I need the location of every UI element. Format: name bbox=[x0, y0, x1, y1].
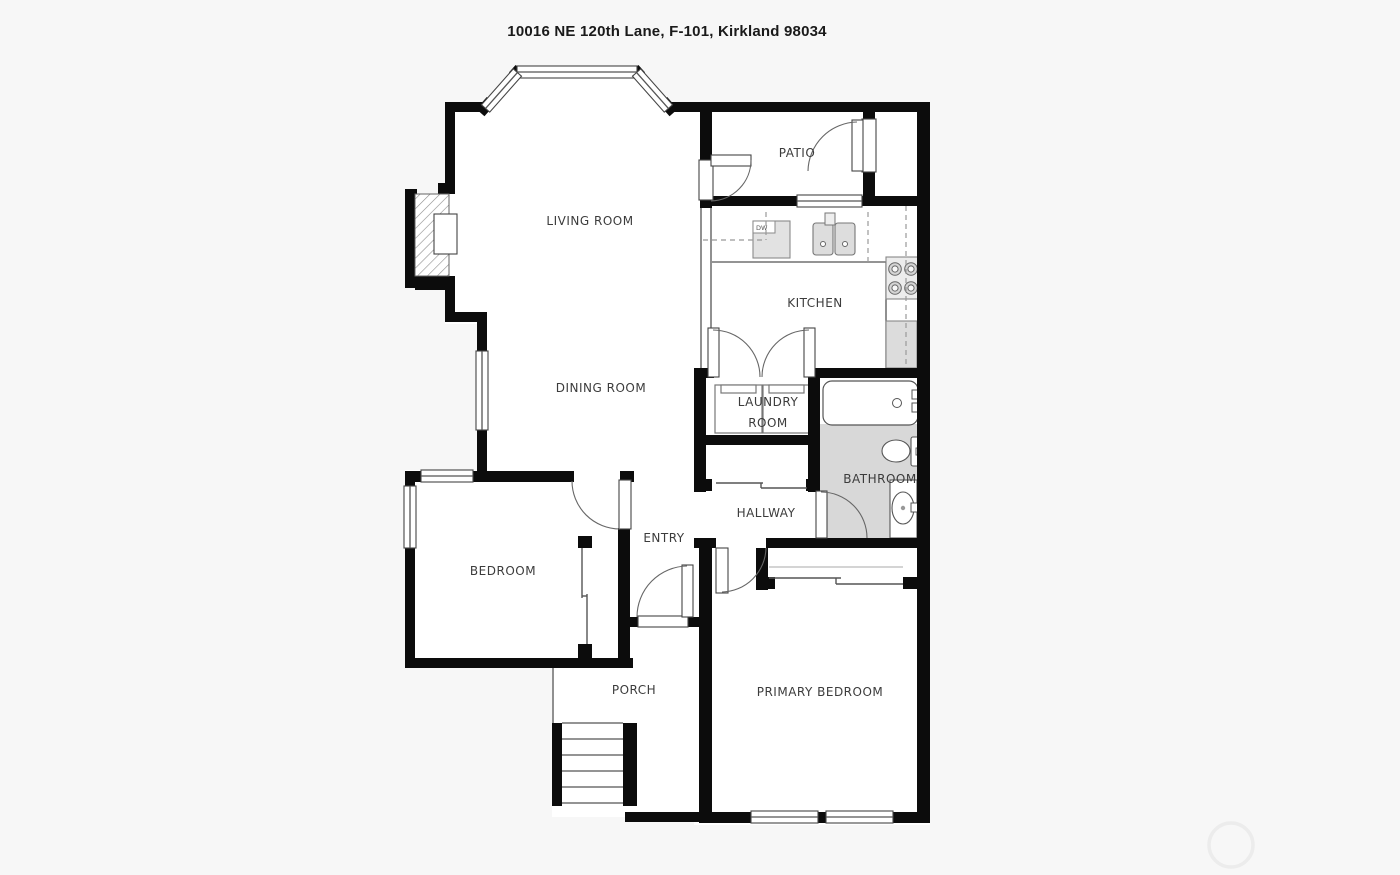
kitchen-label: KITCHEN bbox=[787, 296, 843, 310]
refrigerator bbox=[886, 321, 917, 368]
floorplan-drawing: DW bbox=[0, 0, 1400, 875]
laundry-room-label-line1: LAUNDRY bbox=[738, 395, 799, 409]
floorplan-page: DW bbox=[0, 0, 1400, 875]
laundry-room-label-line2: ROOM bbox=[748, 416, 788, 430]
dining-window bbox=[476, 351, 488, 430]
faucet-icon bbox=[825, 213, 835, 225]
primary-window-left bbox=[751, 811, 818, 823]
living-room-label: LIVING ROOM bbox=[546, 214, 633, 228]
page-title: 10016 NE 120th Lane, F-101, Kirkland 980… bbox=[507, 23, 827, 40]
kitchen-window bbox=[797, 195, 862, 207]
bathroom-label: BATHROOM bbox=[843, 472, 916, 486]
vanity-sink bbox=[890, 480, 919, 538]
patio-label: PATIO bbox=[779, 146, 816, 160]
firebox bbox=[434, 214, 457, 254]
bathtub bbox=[823, 381, 924, 425]
stove bbox=[886, 257, 918, 299]
bedroom-left-window bbox=[404, 486, 416, 548]
fireplace bbox=[405, 183, 457, 290]
primary-bedroom-label: PRIMARY BEDROOM bbox=[757, 685, 884, 699]
porch-label: PORCH bbox=[612, 683, 656, 697]
hallway-label: HALLWAY bbox=[737, 506, 796, 520]
primary-window-right bbox=[826, 811, 893, 823]
entry-label: ENTRY bbox=[643, 531, 684, 545]
bedroom-label: BEDROOM bbox=[470, 564, 536, 578]
bedroom-top-window bbox=[421, 470, 473, 482]
dining-room-label: DINING ROOM bbox=[556, 381, 646, 395]
